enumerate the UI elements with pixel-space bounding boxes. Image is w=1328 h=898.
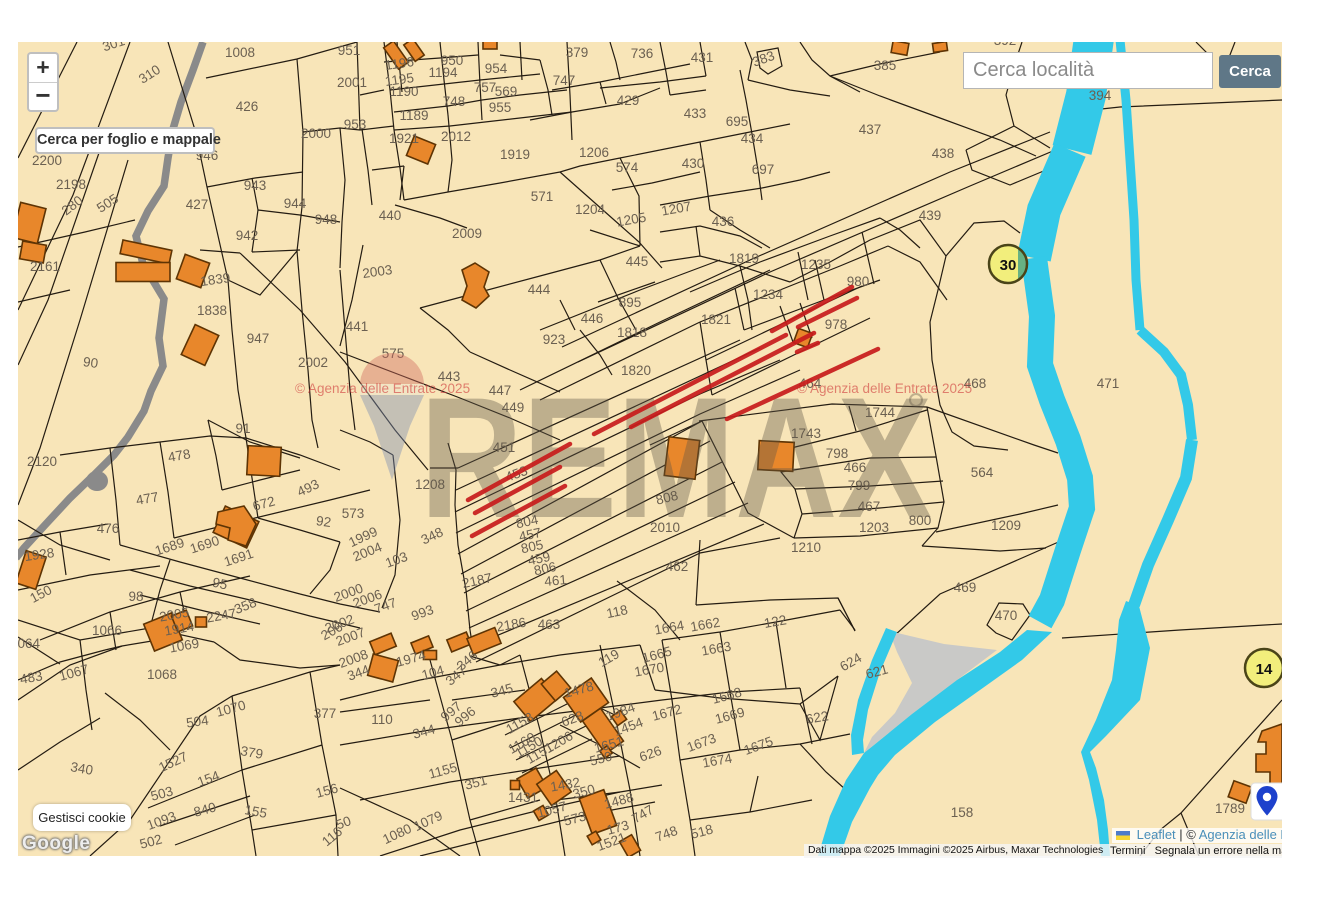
svg-text:462: 462 xyxy=(666,559,689,574)
svg-text:695: 695 xyxy=(726,114,749,129)
svg-text:504: 504 xyxy=(185,712,210,730)
svg-text:30: 30 xyxy=(1000,257,1017,274)
svg-text:469: 469 xyxy=(954,580,977,595)
svg-text:757: 757 xyxy=(474,80,497,95)
svg-text:470: 470 xyxy=(995,608,1018,623)
svg-text:2001: 2001 xyxy=(337,75,367,90)
svg-text:1431: 1431 xyxy=(508,790,538,805)
svg-text:14: 14 xyxy=(1256,661,1273,678)
svg-text:1209: 1209 xyxy=(991,518,1021,533)
svg-text:564: 564 xyxy=(971,465,994,480)
svg-text:944: 944 xyxy=(284,196,307,211)
svg-text:2002: 2002 xyxy=(298,355,328,370)
svg-text:98: 98 xyxy=(128,589,143,604)
svg-text:948: 948 xyxy=(315,212,338,227)
svg-text:438: 438 xyxy=(932,146,955,161)
svg-text:697: 697 xyxy=(752,162,775,177)
svg-text:437: 437 xyxy=(859,122,882,137)
svg-text:573: 573 xyxy=(342,506,365,521)
svg-text:439: 439 xyxy=(919,208,942,223)
svg-text:2012: 2012 xyxy=(441,129,471,144)
svg-text:1204: 1204 xyxy=(575,202,606,217)
svg-text:978: 978 xyxy=(825,317,848,332)
svg-text:895: 895 xyxy=(619,295,642,310)
svg-text:426: 426 xyxy=(236,99,259,114)
svg-text:951: 951 xyxy=(338,43,361,58)
svg-text:1921: 1921 xyxy=(389,131,419,146)
svg-text:433: 433 xyxy=(684,106,707,121)
svg-text:1068: 1068 xyxy=(147,667,177,682)
svg-text:748: 748 xyxy=(443,94,466,109)
svg-text:441: 441 xyxy=(346,319,369,334)
svg-text:431: 431 xyxy=(691,50,714,65)
svg-text:1789: 1789 xyxy=(1215,801,1245,816)
svg-text:1206: 1206 xyxy=(579,145,609,160)
svg-text:950: 950 xyxy=(441,53,464,68)
svg-text:427: 427 xyxy=(186,197,209,212)
svg-text:1821: 1821 xyxy=(701,312,731,327)
svg-text:476: 476 xyxy=(97,521,120,536)
svg-text:2198: 2198 xyxy=(56,177,86,192)
svg-text:429: 429 xyxy=(617,93,640,108)
svg-text:© Agenzia delle Entrate 2025: © Agenzia delle Entrate 2025 xyxy=(295,381,470,396)
svg-text:379: 379 xyxy=(566,45,589,60)
svg-text:1234: 1234 xyxy=(753,287,784,302)
svg-text:95: 95 xyxy=(211,575,229,593)
svg-text:377: 377 xyxy=(314,706,337,721)
svg-text:434: 434 xyxy=(741,131,764,146)
svg-text:2200: 2200 xyxy=(32,153,62,168)
svg-text:1819: 1819 xyxy=(729,251,759,266)
svg-text:1064: 1064 xyxy=(18,636,41,651)
svg-text:445: 445 xyxy=(626,254,649,269)
svg-text:923: 923 xyxy=(543,332,566,347)
svg-text:471: 471 xyxy=(1097,376,1120,391)
svg-text:955: 955 xyxy=(489,100,512,115)
svg-text:942: 942 xyxy=(236,228,259,243)
svg-text:444: 444 xyxy=(528,282,551,297)
svg-text:954: 954 xyxy=(485,61,508,76)
svg-text:92: 92 xyxy=(315,513,332,530)
svg-text:1008: 1008 xyxy=(225,45,255,60)
svg-text:943: 943 xyxy=(244,178,267,193)
svg-text:1189: 1189 xyxy=(399,108,428,123)
svg-text:2161: 2161 xyxy=(30,259,60,274)
svg-text:736: 736 xyxy=(631,46,654,61)
svg-text:91: 91 xyxy=(235,421,250,436)
svg-text:747: 747 xyxy=(553,73,576,88)
svg-text:571: 571 xyxy=(531,189,554,204)
svg-text:446: 446 xyxy=(581,311,604,326)
svg-text:1235: 1235 xyxy=(801,257,831,272)
svg-text:2000: 2000 xyxy=(301,126,331,141)
svg-text:947: 947 xyxy=(247,331,270,346)
svg-text:1190: 1190 xyxy=(389,84,418,99)
svg-text:574: 574 xyxy=(616,160,639,175)
svg-text:430: 430 xyxy=(682,156,705,171)
svg-text:394: 394 xyxy=(1089,88,1112,103)
svg-text:463: 463 xyxy=(538,617,561,632)
svg-text:158: 158 xyxy=(951,805,974,820)
svg-text:2120: 2120 xyxy=(27,454,57,469)
svg-text:1818: 1818 xyxy=(617,325,647,340)
svg-text:461: 461 xyxy=(544,572,568,589)
svg-text:385: 385 xyxy=(874,58,897,73)
svg-text:1066: 1066 xyxy=(92,623,122,638)
svg-text:440: 440 xyxy=(379,208,402,223)
svg-text:2009: 2009 xyxy=(452,226,482,241)
svg-text:1838: 1838 xyxy=(197,303,227,318)
svg-text:569: 569 xyxy=(495,84,518,99)
svg-text:90: 90 xyxy=(82,354,99,371)
svg-text:1919: 1919 xyxy=(500,147,530,162)
svg-text:436: 436 xyxy=(712,214,735,229)
svg-text:392: 392 xyxy=(994,42,1017,48)
svg-text:110: 110 xyxy=(371,712,393,727)
svg-text:© Agenzia delle Entrate 2025: © Agenzia delle Entrate 2025 xyxy=(797,381,972,396)
svg-text:953: 953 xyxy=(344,117,367,132)
